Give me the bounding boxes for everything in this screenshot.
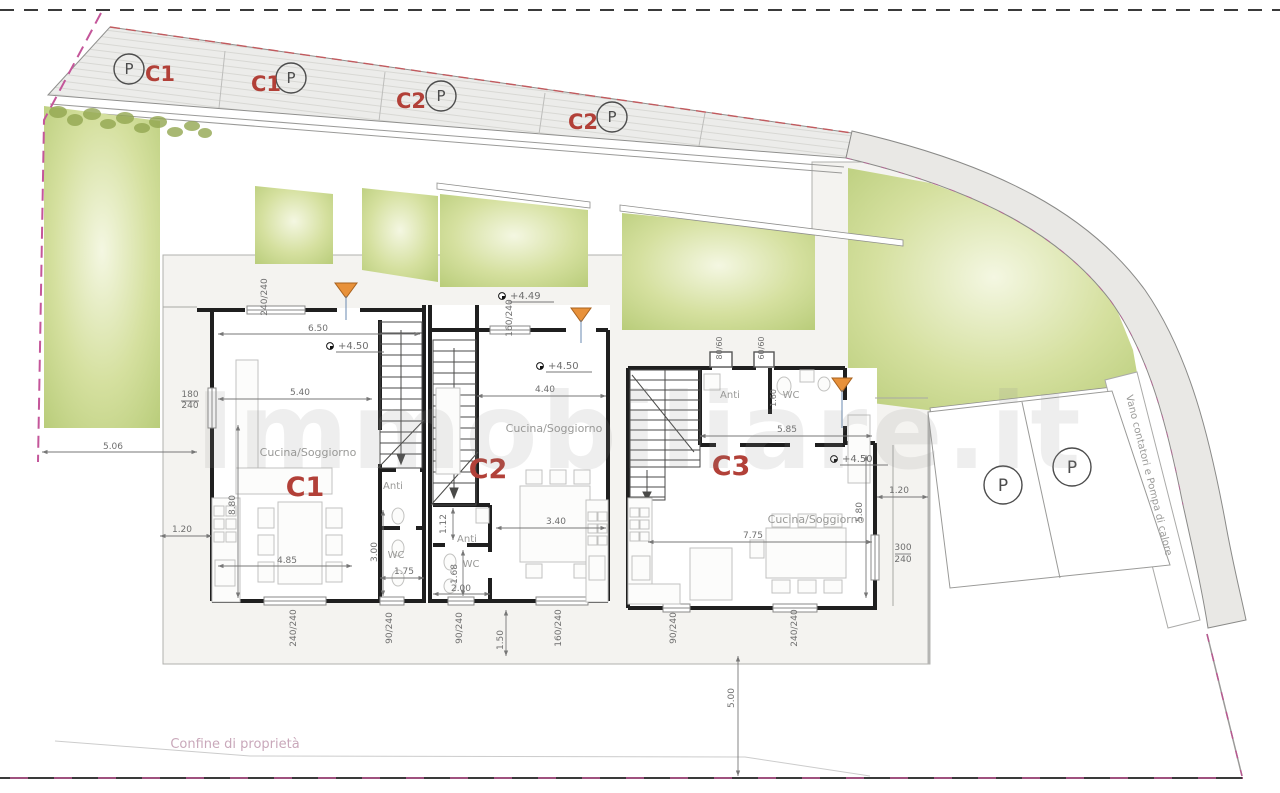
parking-stall-3-p: P xyxy=(436,87,445,105)
dim-c1-width: 6.50 xyxy=(308,324,328,334)
dim-vent-c3-2: 60/60 xyxy=(757,336,766,359)
stove-c3 xyxy=(630,508,649,541)
dim-south-500: 5.00 xyxy=(727,688,737,708)
dim-win-c3-b2: 240/240 xyxy=(790,609,800,647)
site-plan-page: PC1C1PC2PC2PPPC1C2C3Cucina/SoggiornoCuci… xyxy=(0,0,1280,793)
dim-win-c3-right-num: 300 xyxy=(894,543,911,553)
dim-win-c3-right-den: 240 xyxy=(894,555,911,565)
room-label-c1-wc: WC xyxy=(388,550,405,561)
dim-c1-300: 3.00 xyxy=(370,542,380,562)
parking-stall-4-p: P xyxy=(607,108,616,126)
island-c3 xyxy=(690,548,732,600)
dim-left-506: 5.06 xyxy=(103,442,123,452)
garden-c1-a xyxy=(255,186,333,264)
dim-win-c3-b1: 90/240 xyxy=(669,612,679,644)
sink-c3 xyxy=(632,556,650,580)
dim-win-c2-b1: 90/240 xyxy=(455,612,465,644)
washer-c2 xyxy=(476,508,489,523)
stove-c2 xyxy=(588,512,607,545)
garden-c1-b xyxy=(362,188,438,282)
dim-c2-200: 2.00 xyxy=(451,584,471,594)
parking-stall-1-p: P xyxy=(124,60,133,78)
garden-left xyxy=(44,106,160,428)
dining-table-c1 xyxy=(278,502,322,584)
dim-win-c1-b2: 90/240 xyxy=(385,612,395,644)
room-label-c3-living: Cucina/Soggiorno xyxy=(768,513,865,526)
dim-win-c1-b1: 240/240 xyxy=(289,609,299,647)
room-label-c2-wc: WC xyxy=(463,559,480,570)
dim-c3-775: 7.75 xyxy=(743,531,763,541)
dim-c2-168: 1.68 xyxy=(450,564,460,584)
dim-vent-c3-1: 80/60 xyxy=(715,336,724,359)
sink-c2 xyxy=(589,556,605,580)
dim-win-c2-top: 160/240 xyxy=(505,299,515,337)
sink-c1 xyxy=(215,560,235,586)
level-c1: +4.50 xyxy=(338,341,369,352)
watermark: Immobiliare.it xyxy=(195,371,1084,493)
parking-stall-3-unit: C2 xyxy=(396,89,426,113)
dim-c2-112: 1.12 xyxy=(439,514,449,534)
parking-stall-2-unit: C1 xyxy=(251,72,281,96)
property-boundary-label: Confine di proprietà xyxy=(170,737,299,752)
dim-win-c2-b2: 160/240 xyxy=(554,609,564,647)
dim-c2-150: 1.50 xyxy=(496,630,506,650)
parking-stall-1-unit: C1 xyxy=(145,62,175,86)
parking-stall-4-unit: C2 xyxy=(568,110,598,134)
dim-win-c1-top: 240/240 xyxy=(260,278,270,316)
dim-c1-485: 4.85 xyxy=(277,556,297,566)
dim-c1-880: 8.80 xyxy=(228,495,238,515)
parking-area-top xyxy=(48,27,852,173)
dining-table-c3 xyxy=(766,528,846,578)
garden-c2 xyxy=(440,194,588,287)
room-label-c2-anti: Anti xyxy=(457,534,477,545)
parking-stall-2-p: P xyxy=(286,69,295,87)
wc-fixtures-c1 xyxy=(392,508,404,524)
dim-c3-580: 5.80 xyxy=(855,502,865,522)
dim-left-120: 1.20 xyxy=(172,525,192,535)
dim-c1-175: 1.75 xyxy=(394,567,414,577)
dim-c2-340: 3.40 xyxy=(546,517,566,527)
site-plan-drawing: PC1C1PC2PC2PPPC1C2C3Cucina/SoggiornoCuci… xyxy=(0,0,1280,793)
